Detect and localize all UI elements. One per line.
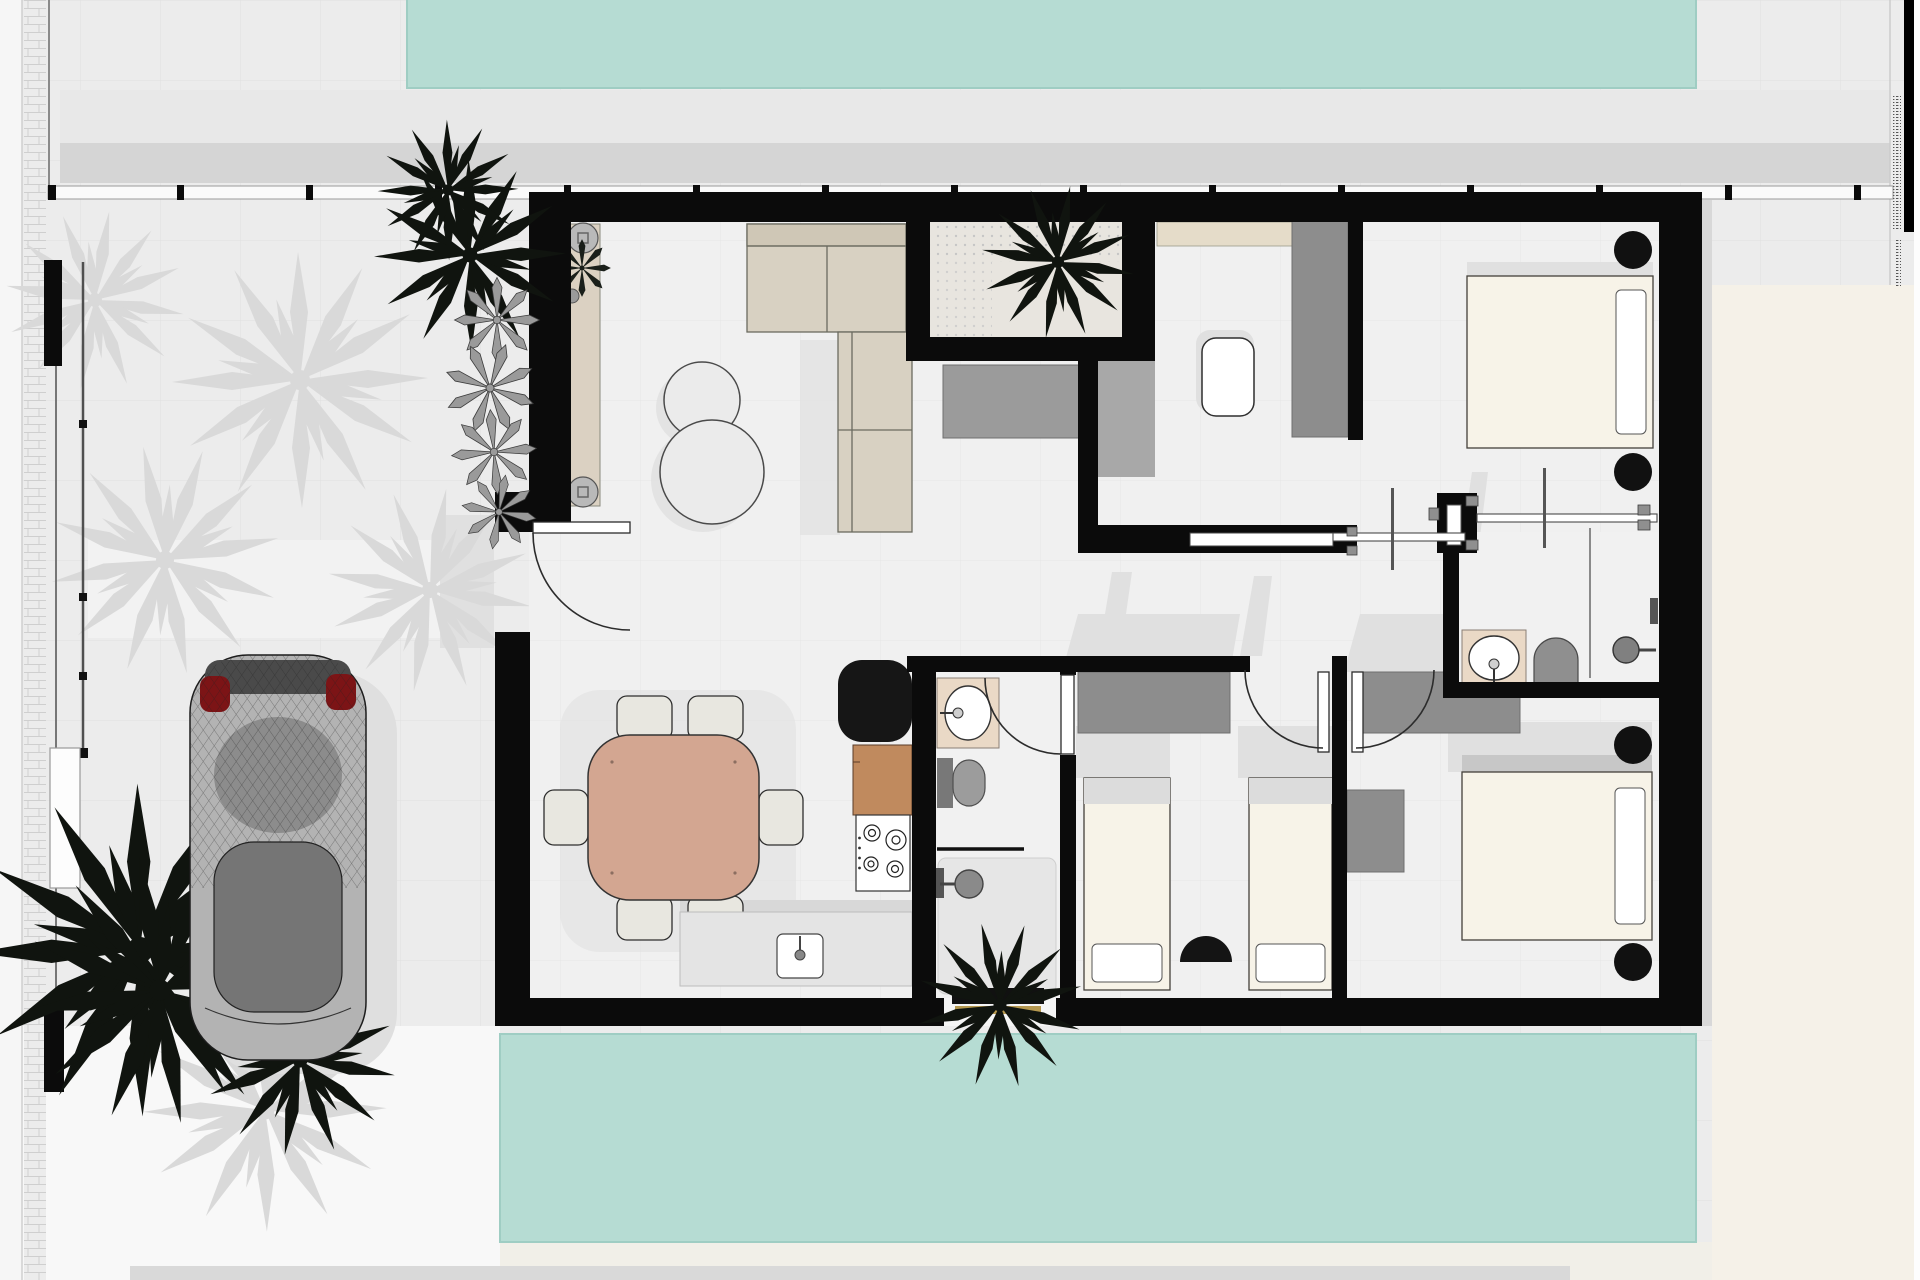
wall-top — [529, 192, 1702, 222]
micro-text-block-2 — [1895, 238, 1901, 286]
left-margin-column — [0, 0, 22, 1280]
master-dresser — [1347, 790, 1404, 872]
wood-counter — [853, 745, 912, 815]
title-black-bar — [1904, 0, 1914, 232]
house-right-shadow — [1702, 200, 1712, 1026]
bed-1-pillow — [1616, 290, 1646, 434]
floor-plan-svg — [0, 0, 1920, 1280]
office-desk — [1202, 338, 1254, 416]
cooktop — [856, 815, 910, 891]
shower-head — [955, 870, 983, 898]
media-return-panel — [1098, 361, 1155, 477]
guest-bath-door-leaf — [1061, 675, 1074, 754]
cream-ground-right — [1712, 285, 1920, 1280]
wall-center — [1332, 656, 1347, 998]
master-door-leaf — [1352, 672, 1363, 752]
parked-car — [190, 655, 366, 1060]
tiled-walkway-texture — [24, 0, 46, 1280]
bedside-table — [1614, 453, 1652, 491]
wall-bath-top — [907, 656, 1060, 672]
bedside-table — [1614, 943, 1652, 981]
pillow — [1256, 944, 1325, 982]
master-pillow — [1615, 788, 1645, 924]
refrigerator — [838, 660, 912, 742]
wall-ensuite-left — [1443, 553, 1459, 698]
wall-bedroom3-top — [1457, 682, 1702, 698]
entry-door-leaf — [533, 522, 630, 533]
bedroom1-door-tick — [1543, 468, 1546, 548]
floor-plan-stage — [0, 0, 1920, 1280]
wall-left-lower — [495, 632, 530, 998]
wall-office-right — [1348, 192, 1363, 440]
bedside-table — [1614, 726, 1652, 764]
wall-bedroom2-top — [1076, 656, 1250, 672]
swimming-pool-top — [407, 0, 1696, 88]
planter-pot-bottom — [568, 477, 598, 507]
bedroom2-door-leaf — [1318, 672, 1329, 752]
office-wardrobe — [1292, 216, 1348, 437]
wall-shelf — [1157, 222, 1292, 246]
ensuite-shower-head — [1613, 637, 1639, 663]
twin-wardrobe — [1078, 672, 1230, 733]
fence-post-block — [44, 260, 62, 366]
bottom-terrace-edge — [130, 1266, 1570, 1280]
wall-patio-right — [1122, 192, 1155, 361]
right-edge-strip — [1914, 0, 1920, 1280]
coffee-table-large — [660, 420, 764, 524]
hall-pocket-door — [1190, 533, 1333, 546]
wall-bottom — [495, 998, 1702, 1026]
wall-kitchen-bath — [912, 656, 936, 998]
pillow — [1092, 944, 1162, 982]
wall-right — [1659, 192, 1702, 1026]
terrace-band — [60, 143, 1890, 183]
wall-patio-left — [906, 192, 930, 361]
ensuite-bathroom — [1459, 528, 1659, 688]
bedside-table — [1614, 231, 1652, 269]
guest-toilet — [937, 758, 985, 808]
hall-door-tick — [1391, 488, 1394, 570]
micro-text-block — [1893, 95, 1901, 230]
bedroom1-sliding-track — [1477, 514, 1657, 522]
wall-hall-vertical — [1078, 361, 1098, 553]
dining-table — [588, 735, 759, 900]
wall-patio-bottom — [906, 337, 1155, 361]
white-planter-box — [50, 748, 80, 888]
wall-left-upper — [529, 192, 571, 532]
terrace-band-light — [60, 90, 1890, 143]
ensuite-toilet — [1534, 638, 1578, 684]
car-windshield — [214, 842, 342, 1012]
swimming-pool-bottom — [500, 1034, 1696, 1242]
